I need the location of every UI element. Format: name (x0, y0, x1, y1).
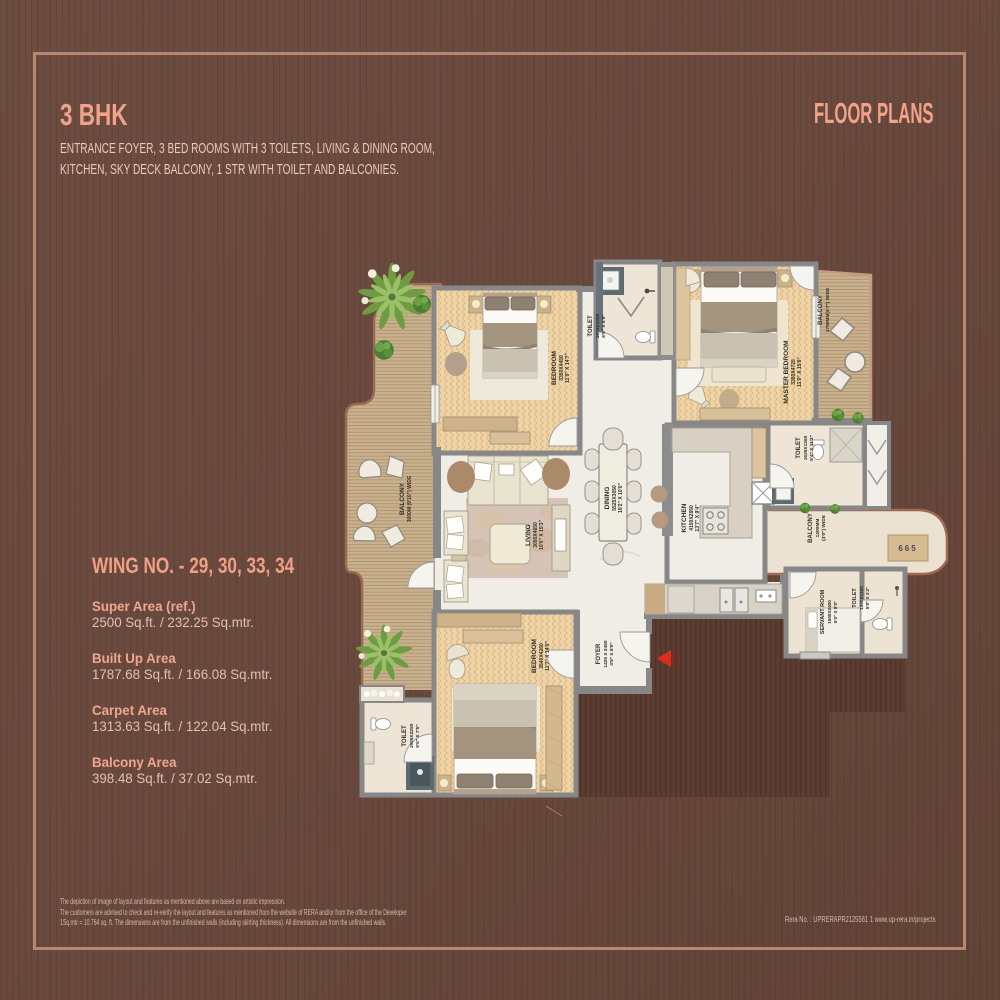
svg-text:(4'0") WIDE: (4'0") WIDE (821, 514, 827, 541)
svg-text:BALCONY: BALCONY (399, 482, 406, 515)
svg-text:MASTER BEDROOM: MASTER BEDROOM (783, 340, 790, 403)
svg-text:1425 X 2450: 1425 X 2450 (603, 640, 609, 668)
svg-text:5'0" X 8'0": 5'0" X 8'0" (833, 601, 838, 623)
svg-text:1975X2050: 1975X2050 (595, 313, 601, 338)
svg-text:6'6" X 7'5": 6'6" X 7'5" (415, 724, 421, 747)
svg-text:10'0" X 15'3": 10'0" X 15'3" (539, 519, 545, 550)
svg-text:1500X2400: 1500X2400 (827, 600, 832, 624)
svg-text:1200MM: 1200MM (815, 519, 821, 538)
svg-text:5'8" X 3'2": 5'8" X 3'2" (865, 587, 870, 609)
svg-text:6'6" X 6'9": 6'6" X 6'9" (601, 314, 607, 337)
svg-text:BALCONY: BALCONY (818, 295, 824, 325)
svg-text:DINING: DINING (604, 487, 611, 510)
svg-text:11'7" X 14'0": 11'7" X 14'0" (545, 641, 551, 671)
svg-text:1925X2250: 1925X2250 (409, 723, 415, 748)
svg-text:TOILET: TOILET (588, 315, 594, 337)
svg-text:SERVANT ROOM: SERVANT ROOM (820, 589, 826, 634)
svg-text:ENTRY: ENTRY (674, 650, 680, 667)
svg-text:BEDROOM: BEDROOM (531, 639, 538, 673)
svg-text:1360X1250: 1360X1250 (859, 586, 864, 610)
svg-text:TOILET: TOILET (402, 725, 408, 747)
svg-text:665: 665 (898, 544, 917, 553)
svg-text:4'8" X 8'0": 4'8" X 8'0" (609, 642, 615, 665)
svg-text:13'7" X 9'4": 13'7" X 9'4" (695, 504, 701, 532)
svg-text:TOILET: TOILET (852, 588, 858, 608)
svg-text:11'0" X 14'7": 11'0" X 14'7" (565, 353, 571, 383)
svg-text:KITCHEN: KITCHEN (681, 503, 688, 532)
svg-text:BALCONY: BALCONY (808, 513, 814, 543)
svg-text:1790MM(5'7") WIDE: 1790MM(5'7") WIDE (825, 287, 831, 332)
svg-text:LIVING: LIVING (525, 524, 532, 546)
svg-text:3000M (9'10") WIDE: 3000M (9'10") WIDE (407, 475, 413, 522)
svg-text:BEDROOM: BEDROOM (551, 351, 558, 385)
svg-text:FOYER: FOYER (596, 643, 602, 664)
svg-text:TOILET: TOILET (796, 437, 802, 459)
svg-text:1625X1360: 1625X1360 (803, 435, 809, 460)
svg-text:11'0" X 15'6": 11'0" X 15'6" (797, 357, 803, 387)
svg-text:5'4" X 11'2": 5'4" X 11'2" (809, 435, 815, 461)
svg-text:18'2" X 10'0": 18'2" X 10'0" (618, 482, 624, 513)
